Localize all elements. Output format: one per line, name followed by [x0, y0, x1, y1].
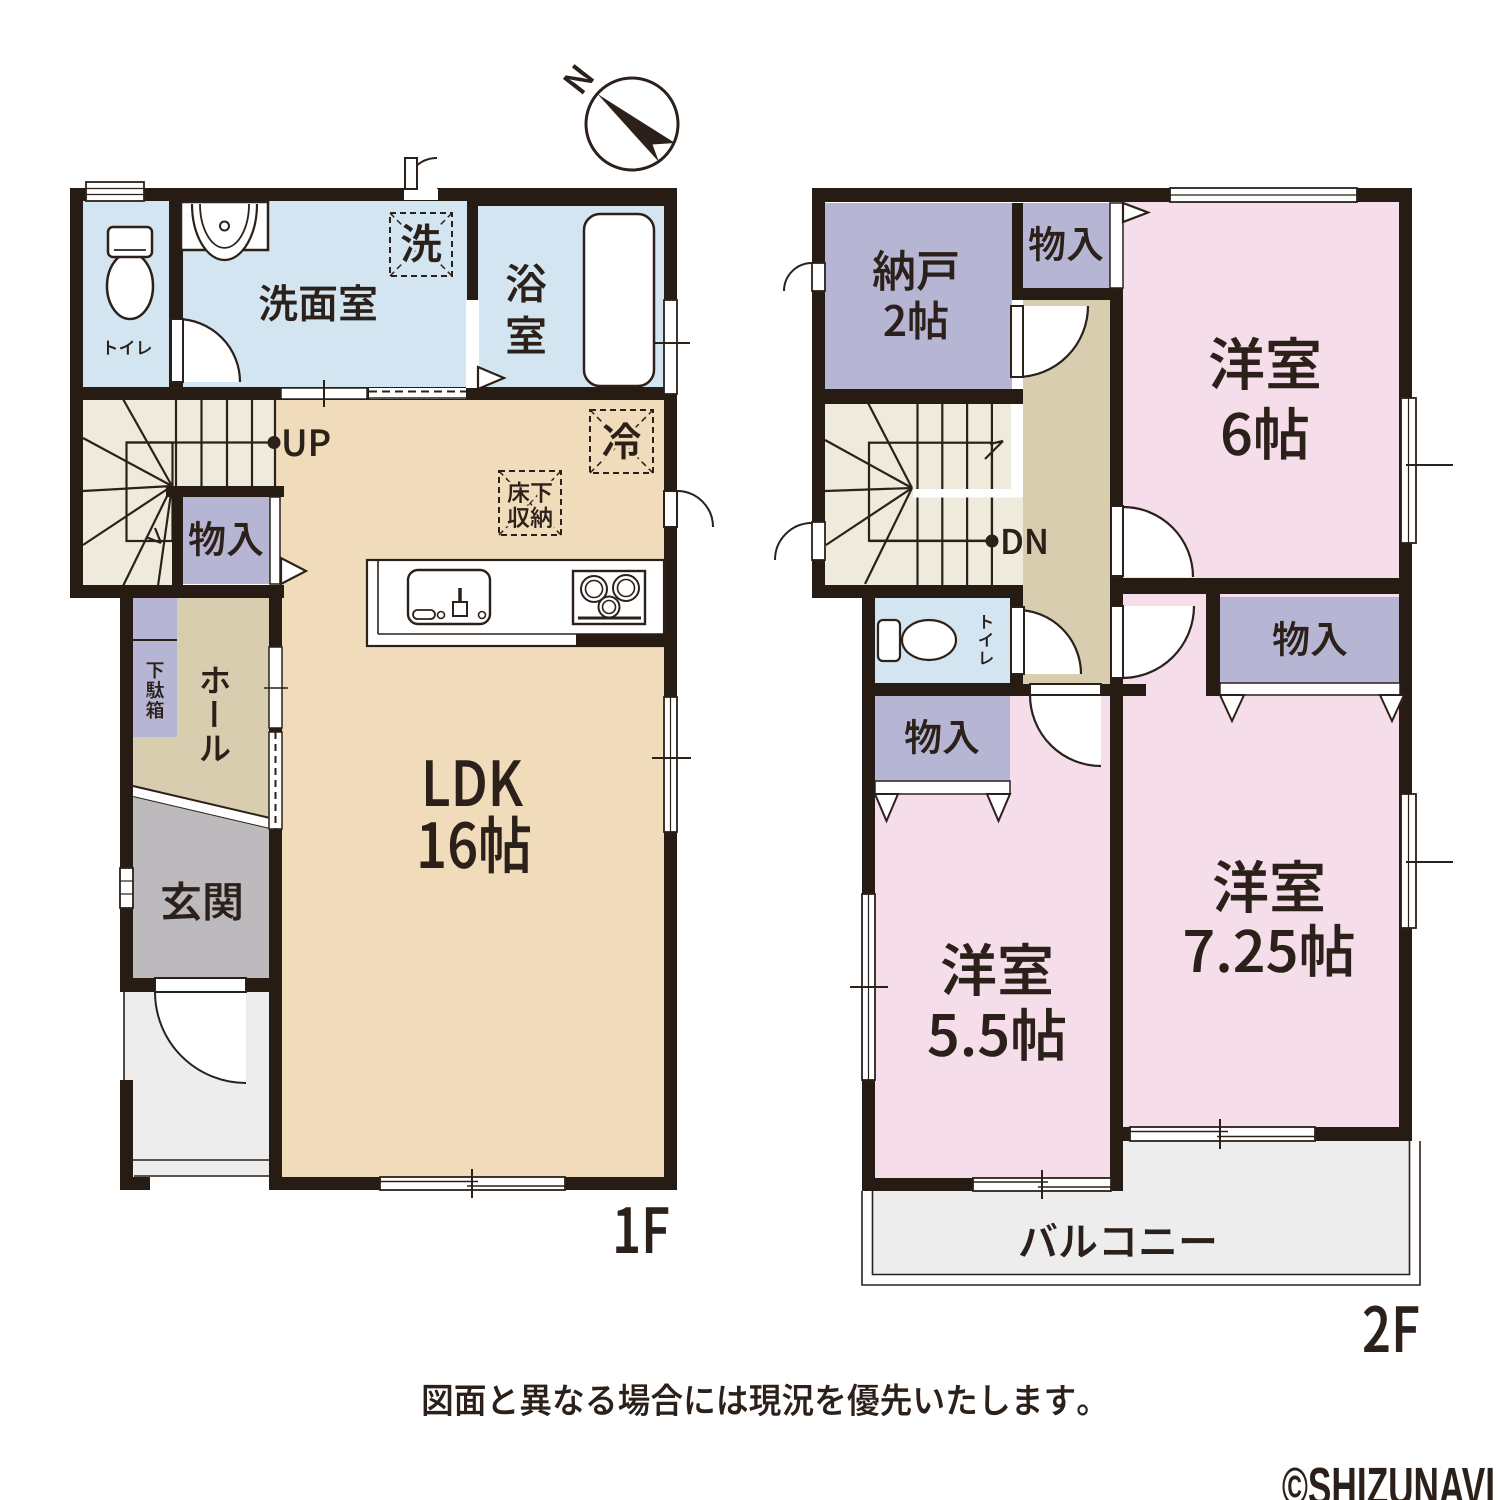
svg-text:7.25帖: 7.25帖 [1182, 907, 1355, 989]
svg-text:バルコニー: バルコニー [1018, 1210, 1218, 1268]
svg-text:図面と異なる場合には現況を優先いたします。: 図面と異なる場合には現況を優先いたします。 [421, 1373, 1109, 1424]
svg-text:トイレ: トイレ [102, 334, 153, 359]
svg-text:物入: 物入 [188, 509, 264, 564]
svg-text:収納: 収納 [507, 499, 553, 533]
svg-text:レ: レ [978, 645, 995, 669]
svg-text:16帖: 16帖 [416, 796, 532, 886]
svg-text:箱: 箱 [145, 696, 164, 723]
svg-text:2F: 2F [1362, 1280, 1420, 1370]
svg-text:©SHIZUNAVI: ©SHIZUNAVI [1282, 1457, 1495, 1500]
svg-text:物入: 物入 [904, 707, 980, 762]
svg-text:物入: 物入 [1028, 214, 1104, 269]
svg-text:室: 室 [505, 303, 547, 364]
svg-text:2帖: 2帖 [883, 288, 949, 349]
svg-text:ル: ル [199, 724, 231, 770]
svg-text:1F: 1F [612, 1181, 670, 1271]
svg-text:UP: UP [281, 415, 331, 467]
svg-text:DN: DN [1000, 515, 1049, 564]
svg-text:冷: 冷 [602, 410, 642, 468]
svg-text:洗面室: 洗面室 [258, 272, 378, 330]
svg-text:洗: 洗 [400, 211, 442, 272]
svg-text:玄関: 玄関 [160, 869, 244, 930]
svg-text:6帖: 6帖 [1220, 390, 1310, 472]
svg-text:5.5帖: 5.5帖 [927, 991, 1067, 1073]
svg-text:ホ: ホ [199, 656, 231, 702]
svg-text:物入: 物入 [1272, 609, 1348, 664]
